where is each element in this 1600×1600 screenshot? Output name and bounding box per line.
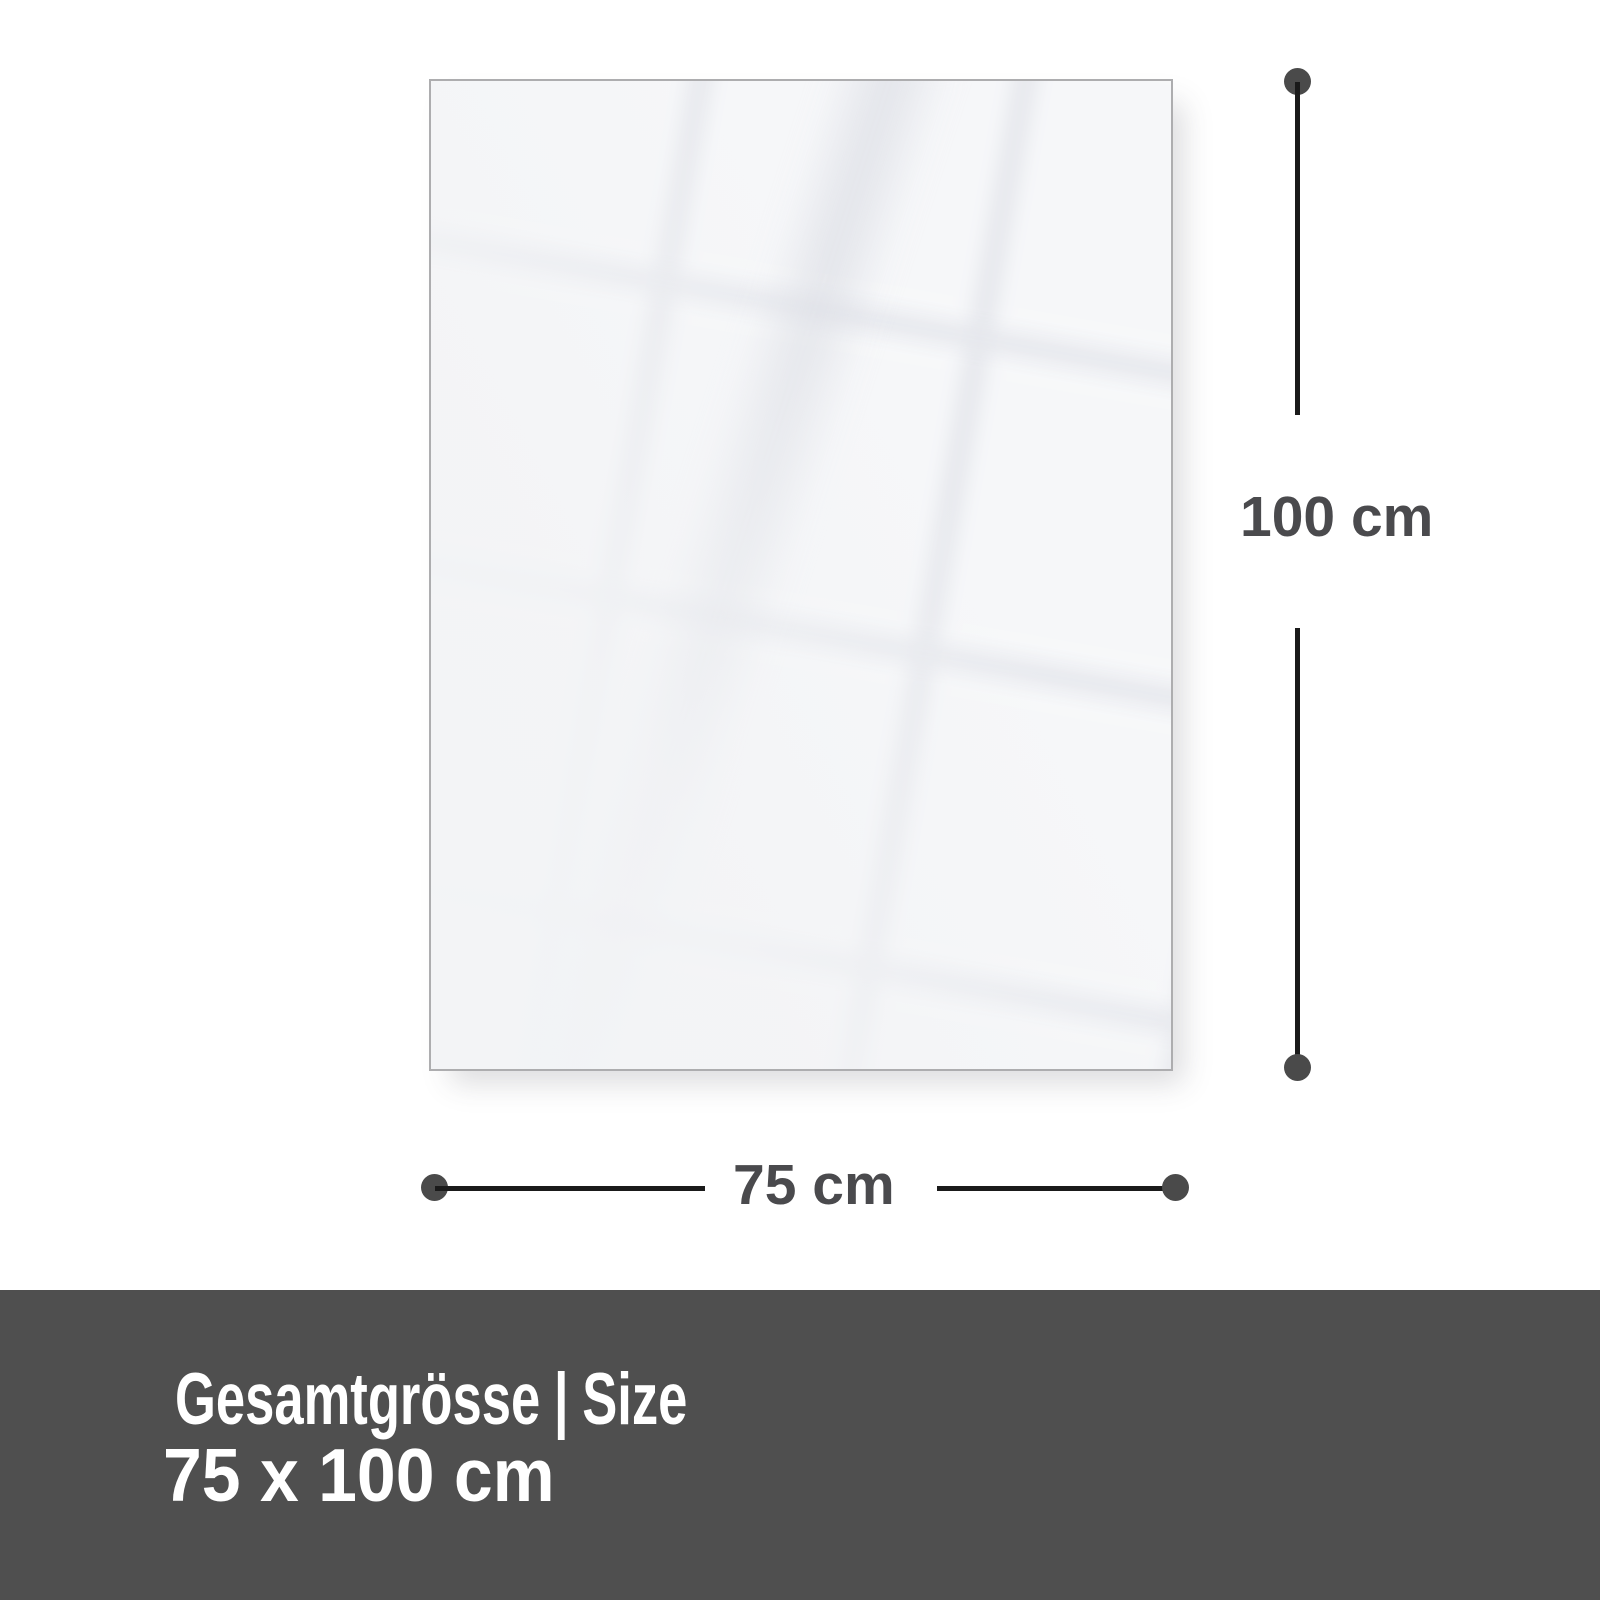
height-dim-line-lower — [1295, 628, 1300, 1067]
width-dim-label: 75 cm — [733, 1157, 895, 1214]
width-dim-line-left — [435, 1186, 705, 1191]
glass-panel — [429, 79, 1173, 1071]
height-dim-line-upper — [1295, 82, 1300, 415]
width-dim-line-right — [937, 1186, 1176, 1191]
product-size-diagram: 100 cm 75 cm Gesamtgrösse|Size 75 x 100 … — [0, 0, 1600, 1600]
reflection-fade — [431, 81, 1171, 1069]
height-dim-bottom-dot — [1284, 1054, 1311, 1081]
width-dim-right-dot — [1162, 1174, 1189, 1201]
footer-title: Gesamtgrösse|Size — [175, 1363, 687, 1436]
footer-title-en: Size — [582, 1359, 687, 1440]
footer-title-divider: | — [554, 1363, 569, 1436]
footer-size-value: 75 x 100 cm — [163, 1438, 555, 1513]
footer-title-de: Gesamtgrösse — [175, 1359, 540, 1440]
height-dim-label: 100 cm — [1240, 489, 1433, 546]
panel-surface — [431, 81, 1171, 1069]
